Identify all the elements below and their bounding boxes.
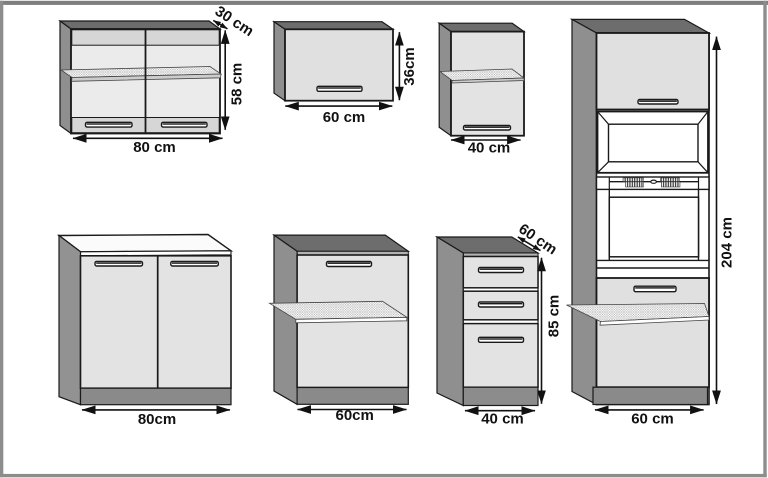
svg-text:40 cm: 40 cm: [468, 139, 511, 156]
svg-text:204 cm: 204 cm: [719, 217, 736, 268]
svg-text:60 cm: 60 cm: [631, 411, 674, 428]
svg-text:60cm: 60cm: [336, 407, 374, 424]
svg-text:40 cm: 40 cm: [481, 411, 524, 428]
svg-text:85 cm: 85 cm: [546, 295, 563, 338]
svg-text:58 cm: 58 cm: [229, 63, 246, 106]
svg-text:80 cm: 80 cm: [133, 139, 176, 156]
svg-text:80cm: 80cm: [138, 411, 176, 428]
svg-text:36cm: 36cm: [401, 47, 418, 85]
svg-text:60 cm: 60 cm: [323, 109, 366, 126]
